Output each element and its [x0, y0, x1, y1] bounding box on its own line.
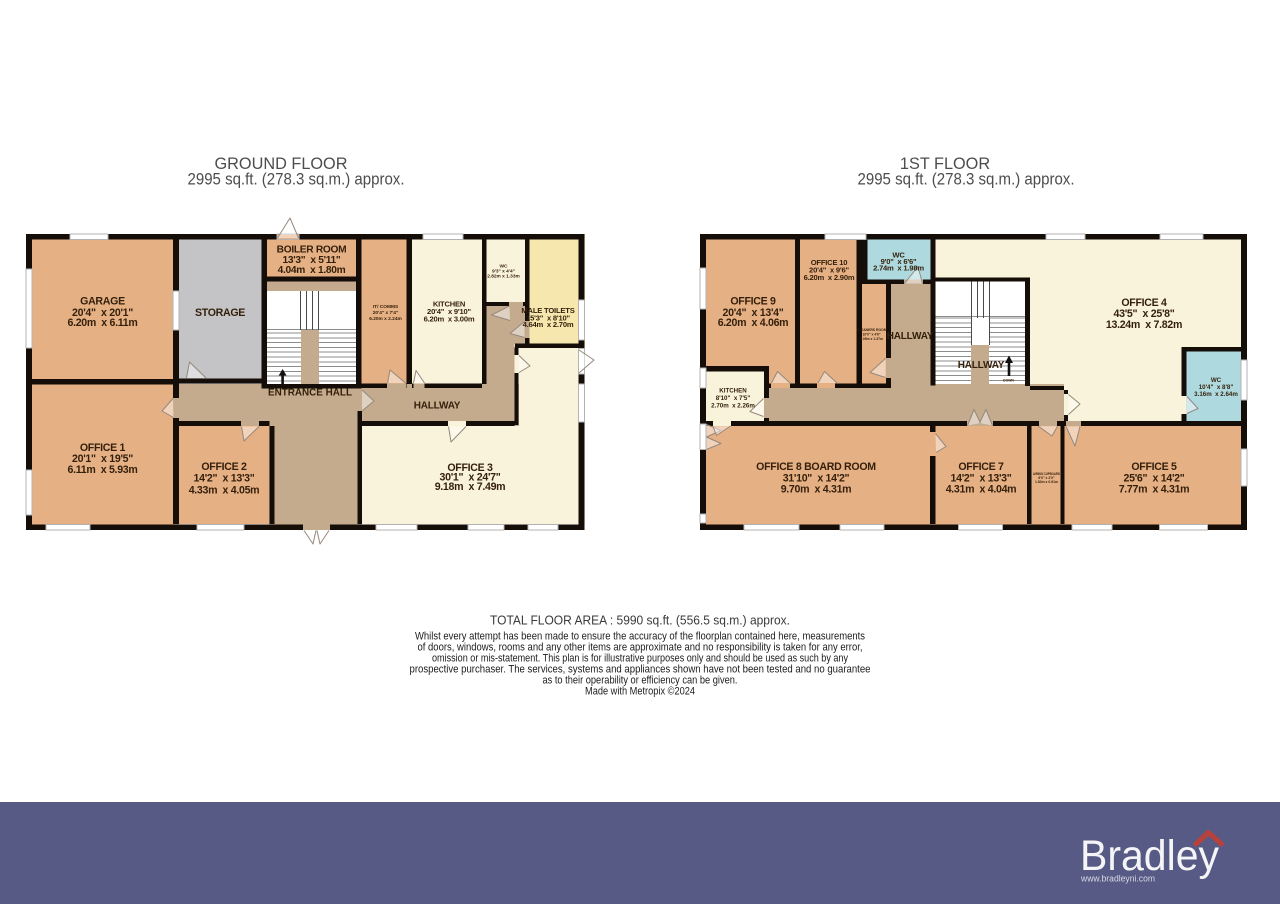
- svg-text:4.64m x 2.70m: 4.64m x 2.70m: [523, 320, 574, 329]
- svg-text:8'10" x 7'5": 8'10" x 7'5": [716, 395, 751, 402]
- svg-text:6.20m x 2.90m: 6.20m x 2.90m: [804, 273, 855, 282]
- svg-text:OFFICE 9: OFFICE 9: [730, 296, 776, 308]
- svg-text:10'4" x 8'8": 10'4" x 8'8": [1199, 384, 1234, 391]
- svg-text:7.77m x 4.31m: 7.77m x 4.31m: [1119, 484, 1190, 496]
- svg-text:ENTRANCE HALL: ENTRANCE HALL: [268, 387, 353, 398]
- svg-text:OFFICE 2: OFFICE 2: [201, 461, 247, 473]
- svg-text:Made with Metropix ©2024: Made with Metropix ©2024: [585, 686, 695, 698]
- svg-text:CLEANERS ROOM: CLEANERS ROOM: [856, 328, 886, 332]
- svg-text:4.31m x 4.04m: 4.31m x 4.04m: [946, 484, 1017, 496]
- svg-text:DOWN: DOWN: [1003, 379, 1014, 383]
- svg-text:6.20m x 4.06m: 6.20m x 4.06m: [718, 317, 789, 329]
- svg-text:HALLWAY: HALLWAY: [414, 401, 461, 412]
- svg-text:OFFICE 7: OFFICE 7: [958, 461, 1004, 473]
- svg-text:2.82m x 1.33m: 2.82m x 1.33m: [487, 274, 520, 280]
- svg-text:3.05m x 1.37m: 3.05m x 1.37m: [860, 337, 883, 341]
- svg-text:13.24m x 7.82m: 13.24m x 7.82m: [1106, 319, 1182, 331]
- svg-text:14'2" x 13'3": 14'2" x 13'3": [194, 473, 255, 485]
- svg-text:6.20m x 3.00m: 6.20m x 3.00m: [424, 315, 475, 324]
- svg-text:OFFICE 5: OFFICE 5: [1131, 461, 1177, 473]
- svg-text:4.33m x 4.05m: 4.33m x 4.05m: [189, 484, 260, 496]
- svg-text:1.83m x 0.61m: 1.83m x 0.61m: [1035, 480, 1058, 484]
- svg-text:BOILER ROOM: BOILER ROOM: [277, 245, 347, 256]
- svg-text:10'0" x 4'6": 10'0" x 4'6": [862, 333, 880, 337]
- svg-text:6.11m x 5.93m: 6.11m x 5.93m: [67, 464, 137, 476]
- svg-text:www.bradleyni.com: www.bradleyni.com: [1080, 874, 1155, 884]
- svg-text:9.70m x 4.31m: 9.70m x 4.31m: [781, 484, 852, 496]
- svg-text:WC: WC: [1211, 377, 1222, 384]
- svg-text:6.20m x 2.24m: 6.20m x 2.24m: [369, 316, 402, 322]
- svg-text:2995 sq.ft. (278.3 sq.m.) appr: 2995 sq.ft. (278.3 sq.m.) approx.: [858, 171, 1075, 189]
- svg-text:STORAGE: STORAGE: [195, 307, 245, 319]
- svg-text:6.20m x 6.11m: 6.20m x 6.11m: [67, 317, 137, 329]
- svg-text:IT/ COMMS: IT/ COMMS: [373, 304, 399, 310]
- svg-text:2.74m x 1.98m: 2.74m x 1.98m: [873, 264, 924, 273]
- svg-text:3.16m x 2.64m: 3.16m x 2.64m: [1194, 391, 1238, 398]
- svg-text:KITCHEN: KITCHEN: [719, 388, 747, 395]
- svg-text:20'4" x 7'4": 20'4" x 7'4": [373, 310, 399, 316]
- svg-text:2995 sq.ft. (278.3 sq.m.) appr: 2995 sq.ft. (278.3 sq.m.) approx.: [188, 171, 405, 189]
- svg-text:TOTAL FLOOR AREA : 5990 sq.ft.: TOTAL FLOOR AREA : 5990 sq.ft. (556.5 sq…: [490, 613, 790, 628]
- svg-text:HALLWAY: HALLWAY: [887, 331, 934, 342]
- svg-text:GARAGE: GARAGE: [80, 296, 125, 308]
- svg-text:HALLWAY: HALLWAY: [958, 360, 1005, 371]
- svg-text:4.04m x 1.80m: 4.04m x 1.80m: [278, 265, 346, 276]
- svg-text:OFFICE 8 BOARD ROOM: OFFICE 8 BOARD ROOM: [756, 461, 876, 473]
- svg-text:9.18m x 7.49m: 9.18m x 7.49m: [435, 481, 506, 493]
- svg-text:2.70m x 2.26m: 2.70m x 2.26m: [711, 403, 755, 410]
